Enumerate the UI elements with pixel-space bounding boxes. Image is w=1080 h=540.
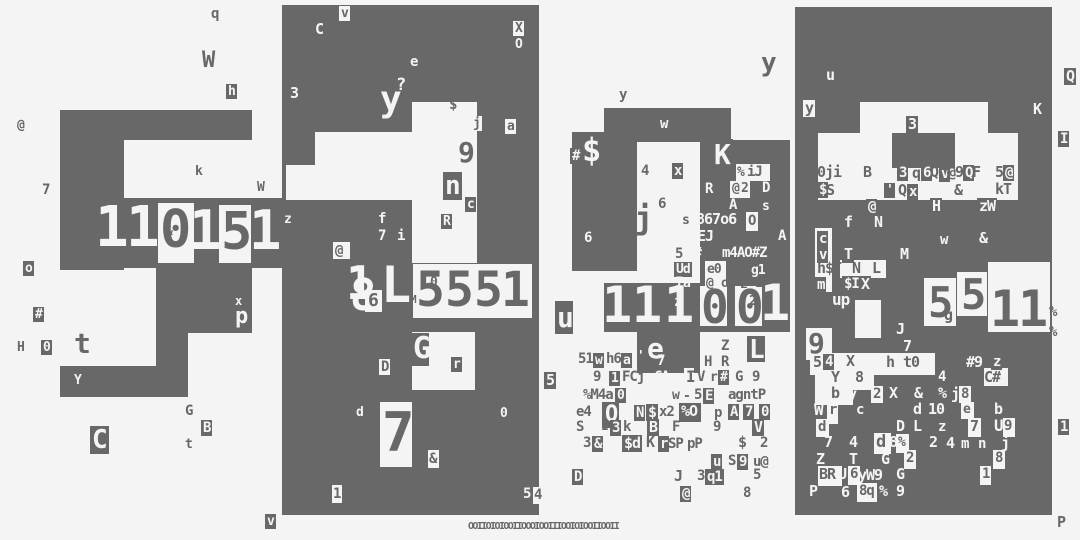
glyph: x2 xyxy=(659,405,674,419)
glyph: up xyxy=(832,292,849,308)
glyph: $d xyxy=(622,435,642,452)
glyph: t xyxy=(185,438,192,451)
glyph: w xyxy=(672,389,679,402)
glyph: D xyxy=(572,469,583,485)
glyph: %# xyxy=(685,246,701,261)
glyph: 1 xyxy=(1018,284,1047,334)
glyph: A xyxy=(728,404,739,420)
glyph: 5 xyxy=(474,266,502,314)
glyph: C xyxy=(90,426,109,454)
glyph: H xyxy=(704,355,711,369)
glyph: 4 xyxy=(946,436,954,451)
glyph: J xyxy=(674,469,682,484)
glyph: @ xyxy=(335,244,342,258)
glyph: # xyxy=(33,307,44,322)
glyph: %M4a xyxy=(583,388,613,402)
glyph: y xyxy=(761,50,776,76)
glyph: K xyxy=(1033,102,1041,117)
glyph: kT xyxy=(995,182,1011,197)
glyph: 9 xyxy=(1004,419,1011,433)
glyph: J xyxy=(896,322,904,337)
glyph: 7 xyxy=(657,354,664,368)
glyph: 7 xyxy=(903,339,911,354)
glyph: 9 xyxy=(896,484,904,499)
glyph: 51 xyxy=(578,352,593,366)
glyph: k xyxy=(195,165,202,178)
glyph: $ xyxy=(738,435,746,450)
glyph: $ xyxy=(582,134,600,166)
glyph: D xyxy=(896,419,904,434)
glyph: u xyxy=(711,454,722,470)
glyph: K xyxy=(960,215,968,230)
glyph: I xyxy=(686,369,695,385)
glyph: K xyxy=(714,141,730,169)
glyph: 7 xyxy=(824,435,832,450)
glyph: L xyxy=(381,260,410,310)
glyph: 3 xyxy=(697,469,704,483)
glyph: 0 xyxy=(857,199,865,214)
glyph: h6 xyxy=(606,352,621,366)
glyph: c xyxy=(969,371,976,385)
glyph: I xyxy=(904,290,916,311)
glyph: B xyxy=(863,165,871,180)
glyph: 1 xyxy=(249,204,281,258)
glyph: 0ji xyxy=(817,165,841,180)
cutout-block xyxy=(124,140,250,198)
glyph: 1 xyxy=(1058,419,1069,435)
glyph: c xyxy=(465,197,476,212)
glyph: Y xyxy=(831,370,839,385)
glyph: t0 xyxy=(903,355,919,370)
glyph: @9 xyxy=(947,165,963,180)
glyph: q1 xyxy=(705,469,724,485)
glyph: # xyxy=(570,148,581,164)
glyph: r xyxy=(710,371,717,384)
glyph: j xyxy=(634,202,652,234)
glyph: 9 xyxy=(737,454,748,470)
glyph: @ xyxy=(680,486,691,502)
glyph: 3 xyxy=(290,86,298,101)
glyph: c xyxy=(856,403,863,417)
glyph: 5 xyxy=(753,468,760,482)
cutout-block xyxy=(286,165,315,200)
glyph: d xyxy=(913,402,921,417)
glyph: 6 xyxy=(368,292,378,310)
glyph: 0 xyxy=(615,388,626,403)
glyph: w xyxy=(658,116,669,132)
glyph: 4 xyxy=(534,488,541,502)
glyph: N xyxy=(922,247,930,262)
glyph: 6 xyxy=(584,231,591,245)
glyph: 6 xyxy=(658,197,665,211)
glyph: F xyxy=(972,165,980,180)
glyph: w xyxy=(938,232,949,248)
glyph: r xyxy=(451,357,462,372)
glyph: $ xyxy=(449,98,456,112)
glyph: & xyxy=(954,183,962,198)
glyph: 3 xyxy=(906,116,918,133)
glyph: # xyxy=(900,215,908,230)
glyph: 1 xyxy=(929,231,937,246)
glyph: Q xyxy=(898,183,906,198)
glyph: 7 xyxy=(743,404,754,420)
glyph: U xyxy=(838,467,846,482)
glyph: b xyxy=(890,246,898,261)
glyph: 5 xyxy=(961,274,985,316)
glyph: y xyxy=(848,387,856,402)
glyph: D xyxy=(762,181,769,195)
glyph: r xyxy=(829,403,836,417)
glyph: y xyxy=(380,82,401,118)
glyph: @ xyxy=(17,119,24,132)
glyph: y xyxy=(619,88,626,102)
glyph: $$ xyxy=(882,230,898,245)
glyph: 7 xyxy=(42,183,49,197)
glyph: 1 xyxy=(333,487,340,501)
glyph: S xyxy=(576,420,583,434)
glyph: V xyxy=(697,370,704,384)
glyph: 10 xyxy=(928,402,944,417)
glyph: 1 xyxy=(501,266,529,314)
glyph: 8q xyxy=(859,484,874,498)
glyph: 1 xyxy=(602,280,631,330)
glyph: C# xyxy=(984,370,1000,385)
glyph: 1M xyxy=(839,231,855,246)
glyph: X xyxy=(513,21,524,36)
glyph: i xyxy=(397,229,404,243)
glyph: W xyxy=(814,402,823,418)
glyph: & xyxy=(977,230,989,247)
glyph: I xyxy=(601,420,608,433)
glyph: N xyxy=(634,405,645,421)
glyph: 0F xyxy=(939,199,955,214)
glyph: O xyxy=(748,214,755,228)
glyph: W xyxy=(202,50,214,72)
glyph: yW9 xyxy=(858,468,882,483)
glyph: 2 xyxy=(929,435,937,450)
glyph: 8 xyxy=(995,451,1002,465)
glyph: & xyxy=(592,436,603,452)
glyph: U xyxy=(865,230,873,245)
glyph: 5 xyxy=(416,266,444,314)
glyph: 0 xyxy=(701,284,728,330)
glyph: 4 xyxy=(849,435,857,450)
glyph: iJ xyxy=(747,165,762,179)
glyph: % xyxy=(879,484,887,499)
glyph: & xyxy=(165,225,172,238)
glyph: % xyxy=(1049,325,1056,339)
glyph: n xyxy=(986,216,993,230)
glyph: g xyxy=(944,308,952,323)
glyph: F xyxy=(672,420,679,434)
glyph: 0 xyxy=(736,284,763,330)
glyph: 5 xyxy=(995,165,1003,180)
glyph: 867o6 xyxy=(696,212,736,227)
glyph: SP xyxy=(668,437,683,451)
glyph: 1 xyxy=(126,200,159,256)
glyph: f xyxy=(378,212,385,226)
glyph: e0 xyxy=(707,263,721,276)
glyph: S xyxy=(728,454,735,468)
glyph: D xyxy=(379,359,390,375)
glyph: EJ xyxy=(697,229,713,244)
glyph: 1 xyxy=(664,280,693,330)
glyph: 8 xyxy=(961,387,968,401)
glyph: 8 xyxy=(743,486,750,500)
glyph: w xyxy=(593,353,604,368)
glyph: n xyxy=(443,172,462,200)
glyph: d xyxy=(818,420,825,434)
glyph: b xyxy=(831,386,839,401)
glyph: 5 xyxy=(445,266,473,314)
glyph: G xyxy=(185,404,192,418)
glyph: %O xyxy=(681,404,697,419)
glyph: P xyxy=(1057,515,1065,530)
glyph: 2 xyxy=(741,182,748,195)
panel-block xyxy=(892,133,955,168)
glyph: 8 xyxy=(889,435,897,450)
glyph: E xyxy=(703,388,714,404)
glyph: u xyxy=(826,68,834,83)
glyph: 0 xyxy=(500,407,507,420)
glyph: BR xyxy=(819,467,835,482)
glyph: 8 xyxy=(855,370,863,385)
glyph: v xyxy=(339,6,350,21)
glyph: h xyxy=(886,355,894,370)
glyph: % xyxy=(737,166,744,179)
glyph: s xyxy=(1002,232,1009,246)
glyph: % xyxy=(898,436,905,449)
glyph: V xyxy=(752,419,764,436)
glyph: ' xyxy=(884,183,895,198)
glyph: & xyxy=(429,452,436,466)
glyph: L xyxy=(913,419,921,434)
glyph: 9 xyxy=(458,139,474,167)
glyph: t xyxy=(74,330,90,358)
glyph: e xyxy=(410,55,417,69)
glyph: j xyxy=(951,387,959,402)
glyph: a xyxy=(505,119,516,134)
glyph: 3 xyxy=(897,165,908,181)
glyph: L xyxy=(914,199,922,214)
glyph: n xyxy=(978,437,985,451)
glyph: 1 xyxy=(760,278,789,328)
glyph: R xyxy=(705,182,712,196)
glyph: W xyxy=(257,181,264,194)
glyph: FCj xyxy=(622,370,644,384)
glyph: U xyxy=(994,418,1003,434)
glyph: L xyxy=(872,261,880,276)
glyph: R xyxy=(721,355,728,369)
glyph: 0 xyxy=(41,340,52,355)
glyph: l' xyxy=(630,350,644,363)
glyph: B xyxy=(201,420,212,436)
glyph: z xyxy=(284,213,291,226)
glyph: 5 xyxy=(221,206,251,258)
glyph: 2 xyxy=(873,387,880,401)
glyph: k xyxy=(623,420,630,434)
glyph: Q xyxy=(930,165,938,180)
glyph: y xyxy=(803,100,815,117)
glyph: G xyxy=(881,452,889,467)
glyph: Z xyxy=(721,339,728,353)
glyph: v xyxy=(265,514,276,529)
glyph: 3 xyxy=(583,436,590,450)
glyph: b xyxy=(994,402,1002,417)
glyph: 7 xyxy=(382,406,414,460)
glyph: 9 xyxy=(713,420,720,434)
glyph: CA xyxy=(654,370,669,384)
glyph: d xyxy=(356,406,363,419)
glyph: I xyxy=(1058,131,1069,147)
glyph: j xyxy=(1001,436,1009,451)
glyph: 5 xyxy=(675,247,682,261)
glyph: @ xyxy=(1003,165,1014,181)
glyph: m xyxy=(815,277,826,293)
glyph: 7 xyxy=(970,419,978,434)
glyph: i xyxy=(834,215,842,230)
glyph: m4AO#Z xyxy=(722,246,767,260)
glyph: pP xyxy=(687,437,702,451)
glyph: N xyxy=(852,261,860,276)
glyph: 2 xyxy=(906,451,913,465)
glyph: S xyxy=(826,183,834,198)
glyph: e xyxy=(963,403,970,416)
glyph: 5 xyxy=(694,388,701,402)
glyph: X xyxy=(859,276,871,293)
glyph: G xyxy=(896,467,904,482)
glyph: 9 xyxy=(593,370,600,384)
glyph: K xyxy=(646,435,654,450)
glyph: O xyxy=(515,38,522,51)
glyph: @ xyxy=(732,182,739,195)
glyph: #9 xyxy=(964,354,984,371)
glyph: e4 xyxy=(576,405,591,419)
glyph: 1 xyxy=(982,467,989,481)
glyph: d xyxy=(876,434,885,451)
glyph: H xyxy=(17,341,24,354)
glyph: 3 xyxy=(610,420,621,436)
glyph: 2 xyxy=(760,436,767,450)
glyph: 1 xyxy=(609,371,620,386)
glyph: # xyxy=(718,370,729,385)
glyph: L xyxy=(749,337,764,363)
glyph: 5 xyxy=(523,487,530,501)
glyph: 1 xyxy=(189,204,221,258)
glyph: T xyxy=(849,452,857,467)
glyph: 1 xyxy=(632,280,661,330)
glyph: p xyxy=(714,406,721,420)
glyph: 9 xyxy=(752,370,759,384)
glyph: q xyxy=(211,7,218,21)
cutout-block xyxy=(860,102,988,133)
glitch-collage-canvas: qWh@7kWo#H0tYxpGBtCv110&151zvCXOe3?y$ja9… xyxy=(0,0,1080,540)
glyph: j xyxy=(471,116,482,131)
glyph: C xyxy=(315,22,323,37)
glyph: - xyxy=(886,280,893,293)
glyph: 1 xyxy=(95,200,128,256)
glyph: h xyxy=(226,84,237,99)
glyph: 1 xyxy=(954,231,962,246)
glyph: X xyxy=(846,354,854,369)
glyph: G xyxy=(413,334,430,364)
glyph: M xyxy=(410,294,416,305)
glyph: p xyxy=(235,306,247,328)
glyph: agntP xyxy=(728,388,765,402)
panel-block xyxy=(156,333,188,367)
glyph: P xyxy=(809,484,817,499)
glyph: 5 xyxy=(544,372,556,389)
cutout-block xyxy=(315,132,412,200)
glyph: zW xyxy=(977,198,997,215)
glyph: 6 xyxy=(850,467,857,481)
glyph: q xyxy=(912,166,920,181)
glyph: M xyxy=(898,246,910,263)
barcode-text: OOIIOIOIOOIIOOOIOOIIIOOIOIOOIIOOII xyxy=(468,522,618,532)
glyph: o xyxy=(23,261,34,276)
panel-block xyxy=(604,140,637,271)
glyph: Y xyxy=(74,374,81,387)
glyph: 6 xyxy=(841,485,849,500)
glyph: 5 xyxy=(813,355,821,370)
glyph: X xyxy=(889,386,897,401)
glyph: A xyxy=(778,229,785,243)
cutout-block xyxy=(855,300,881,338)
glyph: & xyxy=(914,386,922,401)
glyph: x xyxy=(672,163,683,179)
glyph: h xyxy=(945,370,953,385)
glyph: z xyxy=(938,420,945,434)
glyph: h$T xyxy=(817,261,841,276)
glyph: c xyxy=(817,231,828,247)
glyph: 1 xyxy=(990,284,1019,334)
glyph: u xyxy=(557,304,573,332)
glyph: % xyxy=(1049,305,1056,319)
glyph: 4 xyxy=(641,164,648,178)
glyph: m xyxy=(961,437,968,451)
glyph: R xyxy=(441,214,452,229)
glyph: Q xyxy=(1064,68,1076,85)
glyph: s xyxy=(762,200,769,213)
glyph: G xyxy=(735,370,742,384)
glyph: 7 xyxy=(378,229,385,243)
glyph: s xyxy=(682,214,689,227)
